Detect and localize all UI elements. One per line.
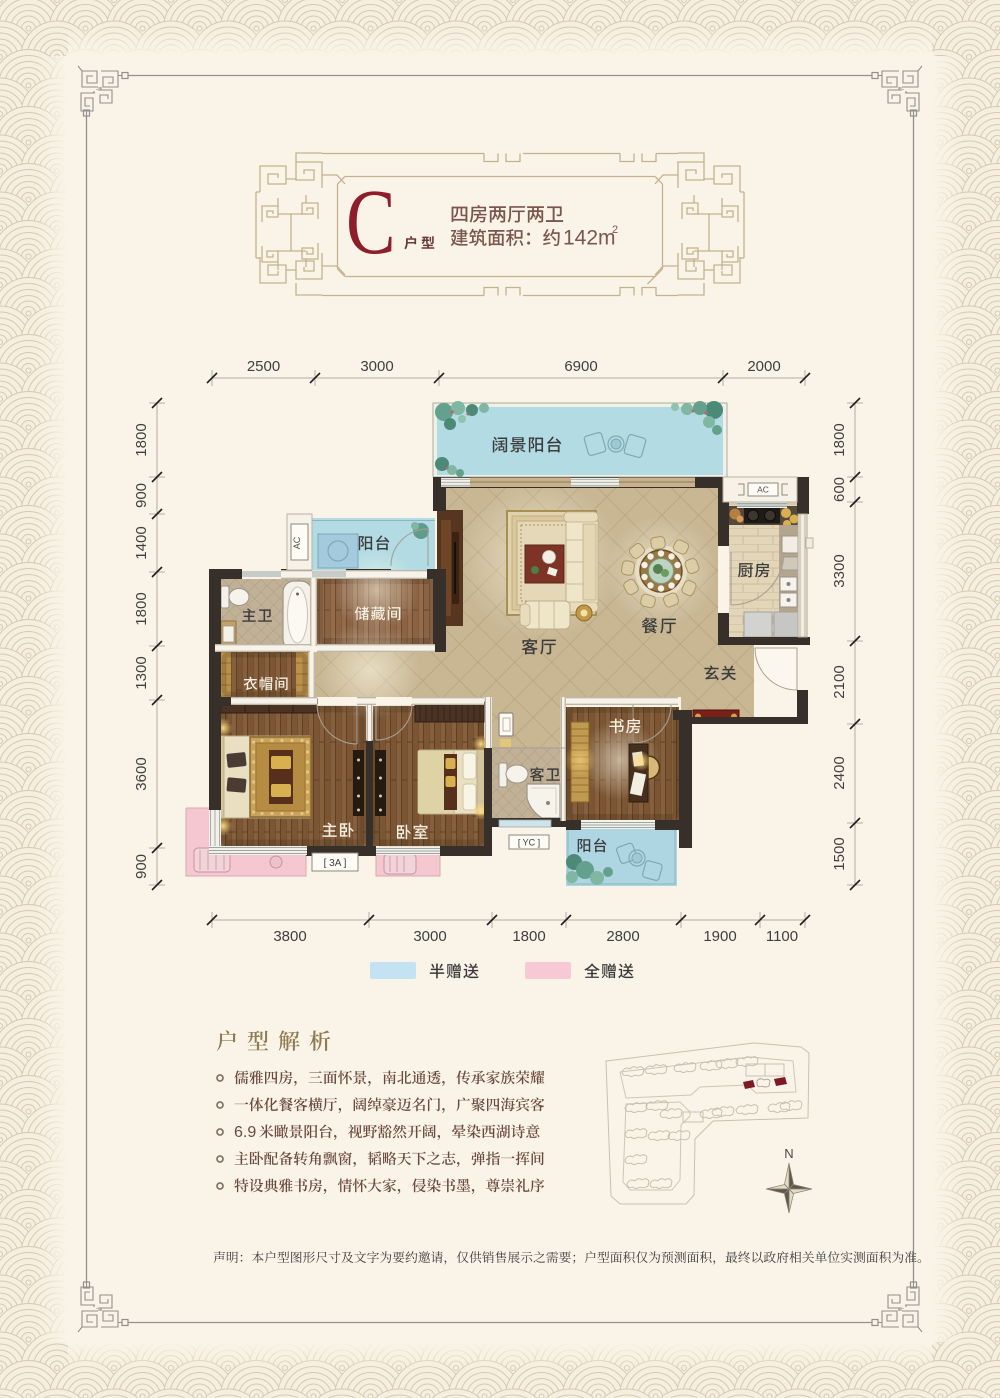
svg-text:600: 600: [831, 477, 848, 502]
svg-text:900: 900: [133, 483, 150, 508]
svg-text:3300: 3300: [831, 554, 848, 587]
svg-text:6900: 6900: [564, 358, 597, 375]
svg-text:[ YC ]: [ YC ]: [518, 838, 540, 848]
svg-text:1500: 1500: [831, 837, 848, 870]
svg-text:1800: 1800: [133, 592, 150, 625]
svg-text:3000: 3000: [413, 928, 446, 945]
svg-text:1400: 1400: [133, 526, 150, 559]
svg-text:1800: 1800: [831, 423, 848, 456]
svg-text:1300: 1300: [133, 656, 150, 689]
svg-text:3000: 3000: [360, 358, 393, 375]
svg-text:2: 2: [612, 224, 618, 236]
svg-text:2100: 2100: [831, 665, 848, 698]
svg-text:AC: AC: [292, 536, 302, 549]
svg-text:2000: 2000: [747, 358, 780, 375]
svg-text:N: N: [784, 1146, 793, 1161]
svg-text:1800: 1800: [133, 423, 150, 456]
svg-text:1100: 1100: [766, 928, 798, 945]
svg-text:900: 900: [133, 854, 150, 879]
svg-text:3800: 3800: [273, 928, 306, 945]
svg-text:C: C: [346, 171, 396, 274]
svg-text:142m: 142m: [563, 227, 616, 250]
svg-text:2400: 2400: [831, 756, 848, 789]
svg-text:3600: 3600: [133, 757, 150, 790]
svg-text:1900: 1900: [703, 928, 736, 945]
svg-text:AC: AC: [757, 485, 769, 495]
svg-text:1800: 1800: [512, 928, 545, 945]
svg-text:2500: 2500: [247, 358, 280, 375]
svg-text:2800: 2800: [606, 928, 639, 945]
svg-text:[ 3A ]: [ 3A ]: [324, 858, 347, 869]
svg-text:6.9: 6.9: [234, 1124, 256, 1141]
